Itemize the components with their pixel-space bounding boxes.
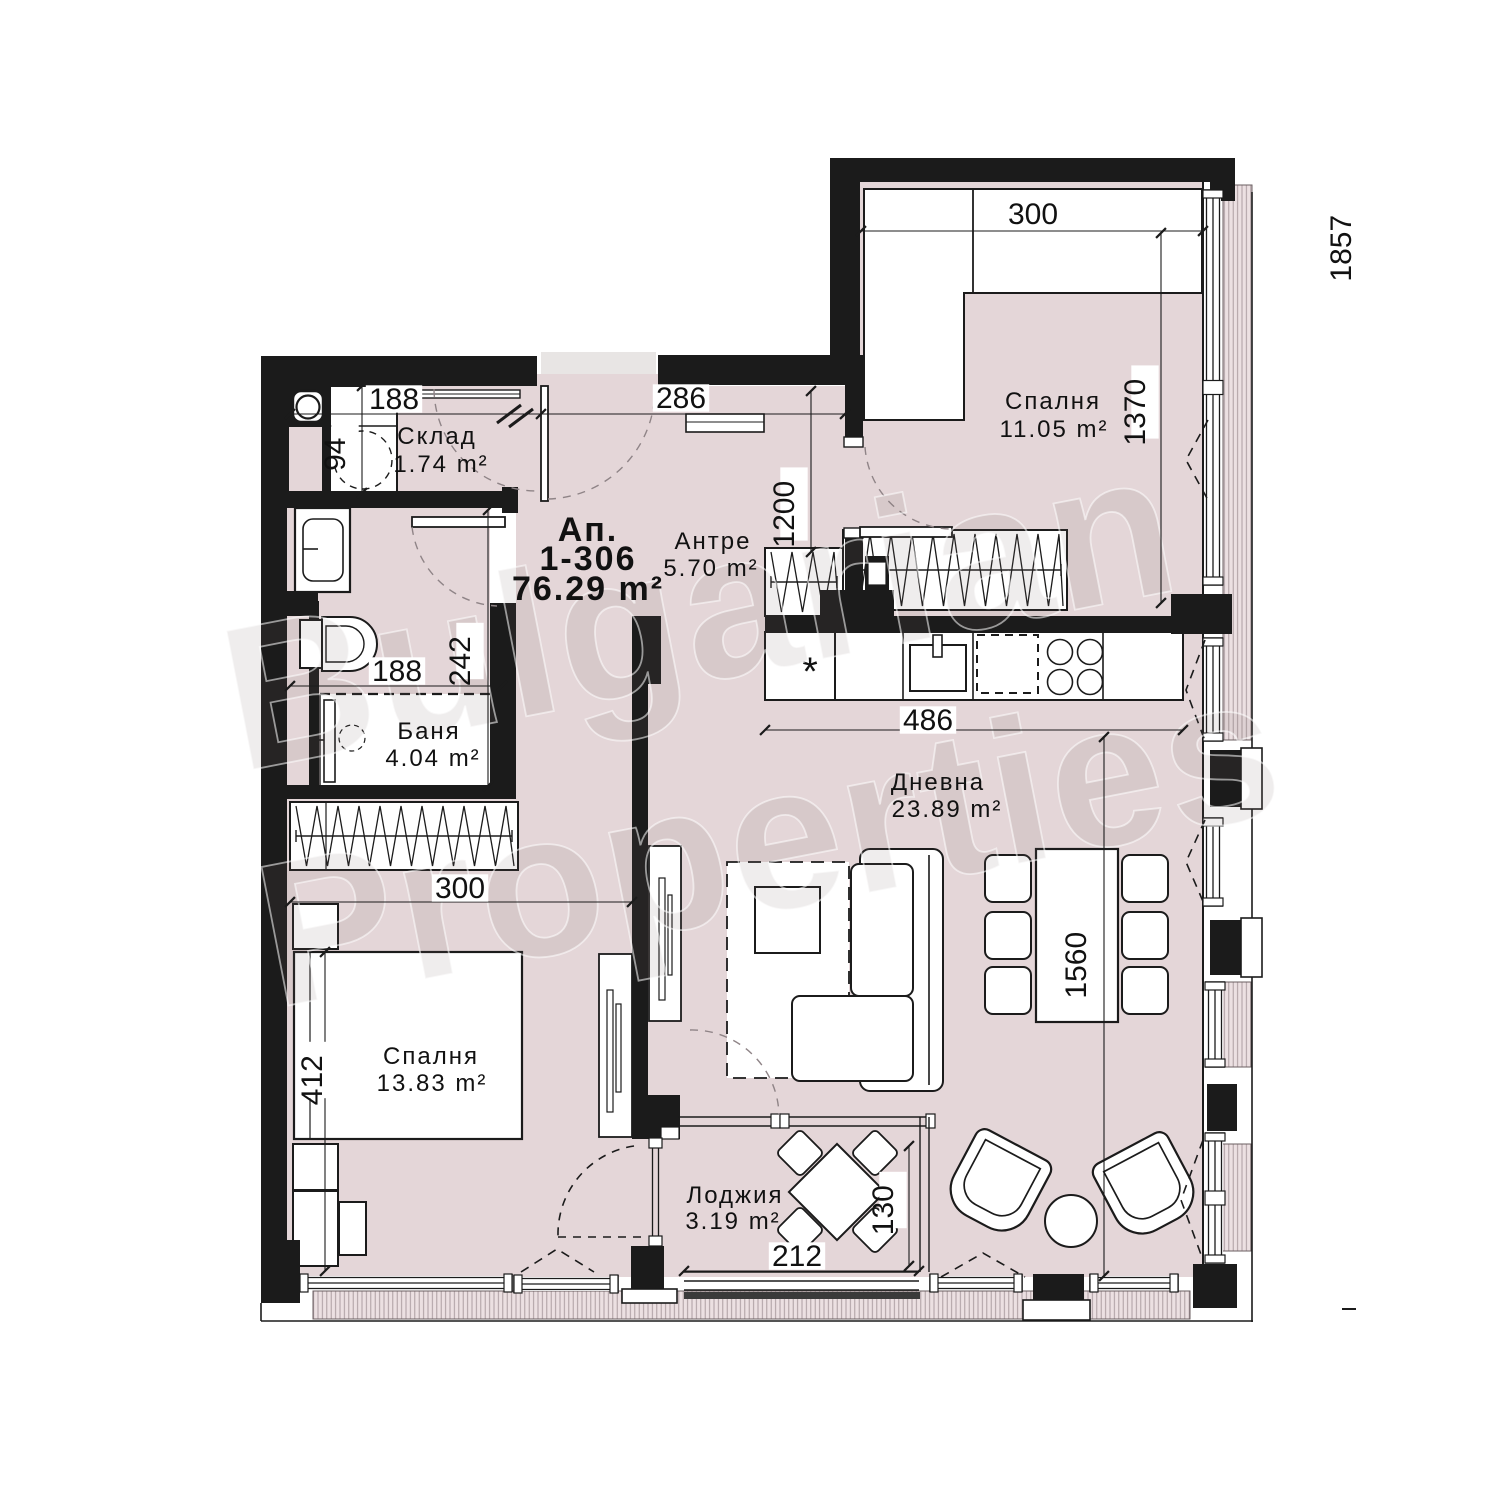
svg-text:Лоджия: Лоджия (686, 1182, 783, 1209)
svg-text:1370: 1370 (1119, 379, 1152, 446)
svg-text:300: 300 (435, 872, 485, 905)
svg-text:1.74 m²: 1.74 m² (393, 451, 488, 478)
svg-text:3.19 m²: 3.19 m² (685, 1208, 780, 1235)
svg-text:300: 300 (1008, 198, 1058, 231)
svg-text:76.29 m²: 76.29 m² (512, 570, 664, 608)
svg-text:242: 242 (444, 636, 477, 686)
svg-text:188: 188 (369, 383, 419, 416)
svg-text:188: 188 (372, 655, 422, 688)
svg-text:Антре: Антре (675, 528, 752, 555)
svg-text:Склад: Склад (397, 423, 476, 450)
svg-text:4.04 m²: 4.04 m² (385, 745, 480, 772)
svg-text:412: 412 (296, 1055, 329, 1105)
svg-text:Спалня: Спалня (383, 1043, 479, 1070)
svg-text:212: 212 (772, 1240, 822, 1273)
svg-text:Спалня: Спалня (1005, 388, 1101, 415)
svg-text:1857: 1857 (1325, 215, 1358, 282)
svg-text:Баня: Баня (397, 718, 460, 745)
svg-text:130: 130 (867, 1185, 900, 1235)
svg-text:11.05 m²: 11.05 m² (1000, 416, 1109, 443)
svg-text:486: 486 (903, 704, 953, 737)
svg-text:94: 94 (319, 438, 352, 471)
svg-text:5.70 m²: 5.70 m² (663, 555, 758, 582)
svg-text:286: 286 (656, 382, 706, 415)
svg-text:1560: 1560 (1060, 932, 1093, 999)
svg-text:1200: 1200 (768, 481, 801, 548)
svg-text:13.83 m²: 13.83 m² (377, 1070, 488, 1097)
svg-text:23.89 m²: 23.89 m² (892, 796, 1003, 823)
svg-text:Дневна: Дневна (891, 769, 985, 796)
